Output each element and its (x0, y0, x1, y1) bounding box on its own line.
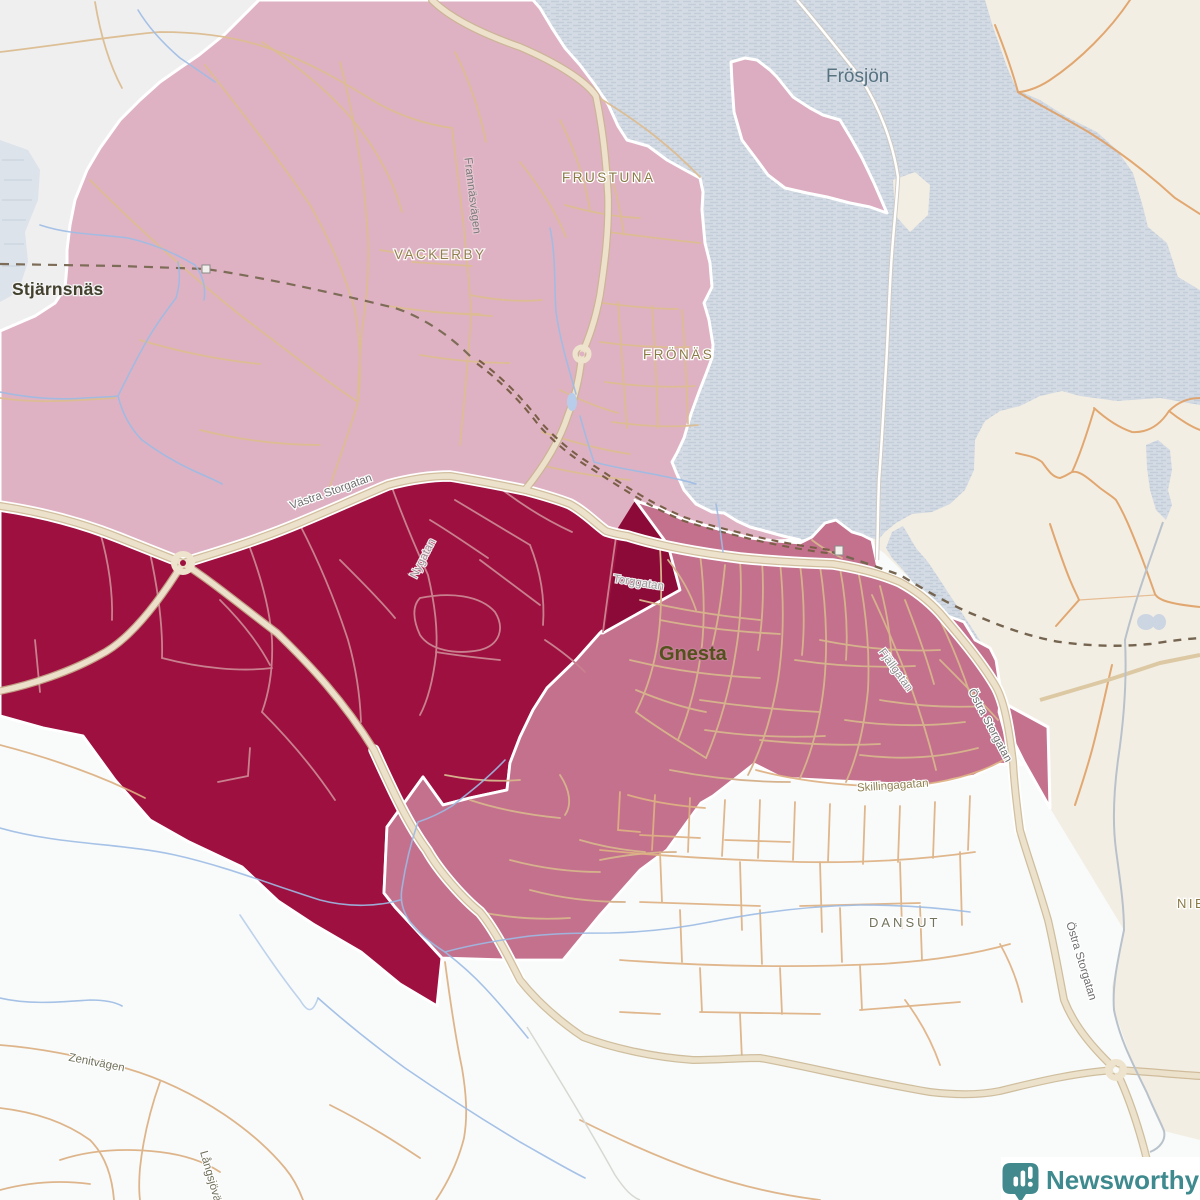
svg-text:VACKERBY: VACKERBY (394, 247, 487, 262)
svg-text:Gnesta: Gnesta (659, 643, 728, 665)
svg-text:FRÖNÄS: FRÖNÄS (643, 347, 714, 362)
svg-text:Stjärnsnäs: Stjärnsnäs (12, 279, 104, 299)
svg-text:FRUSTUNA: FRUSTUNA (562, 170, 656, 185)
svg-text:DANSUT: DANSUT (869, 915, 940, 930)
svg-text:Frösjön: Frösjön (826, 66, 889, 87)
svg-text:Newsworthy: Newsworthy (1046, 1165, 1200, 1195)
svg-text:NIB: NIB (1177, 896, 1200, 911)
